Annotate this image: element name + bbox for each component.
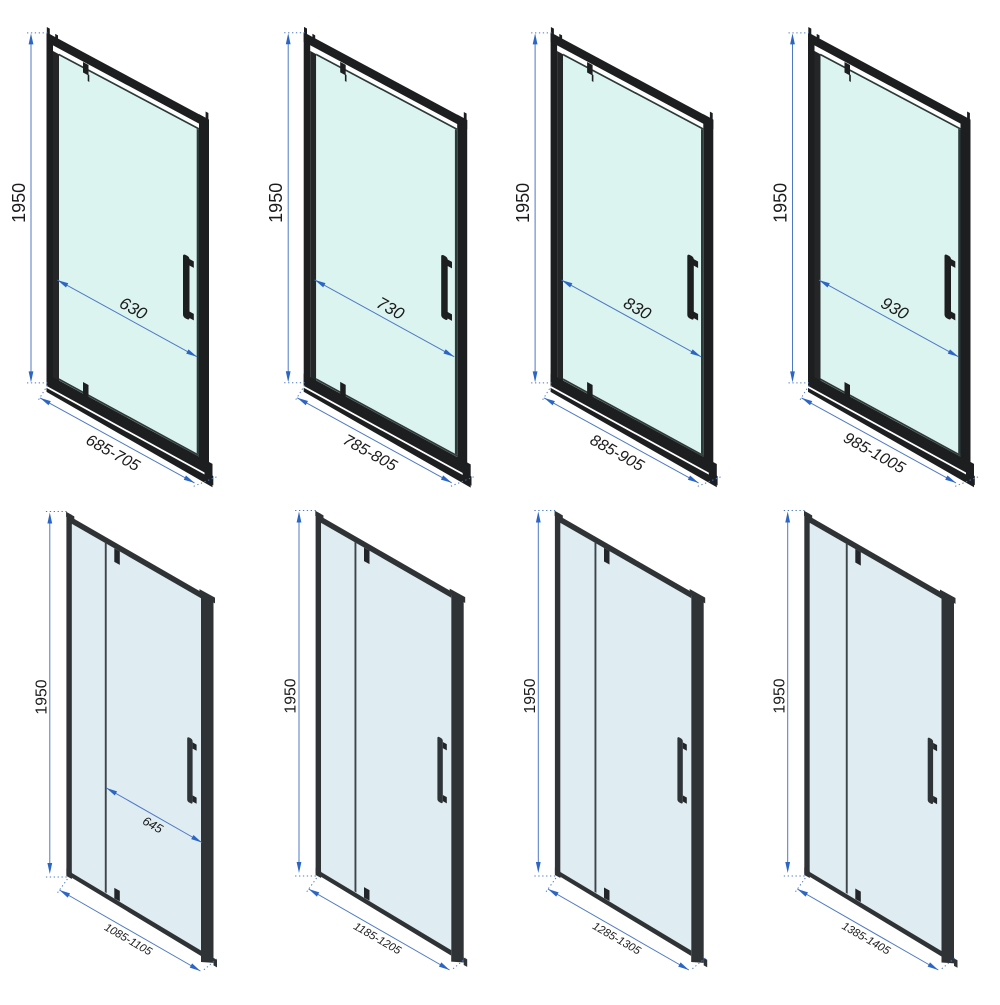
svg-text:1950: 1950 <box>34 679 51 714</box>
svg-text:1950: 1950 <box>771 678 788 713</box>
svg-text:1950: 1950 <box>266 183 286 223</box>
svg-text:1950: 1950 <box>513 183 533 223</box>
svg-text:1950: 1950 <box>9 183 29 223</box>
svg-text:1950: 1950 <box>771 183 791 223</box>
svg-text:1950: 1950 <box>283 678 300 713</box>
svg-text:1950: 1950 <box>522 678 539 713</box>
svg-text:985-1005: 985-1005 <box>840 430 907 478</box>
